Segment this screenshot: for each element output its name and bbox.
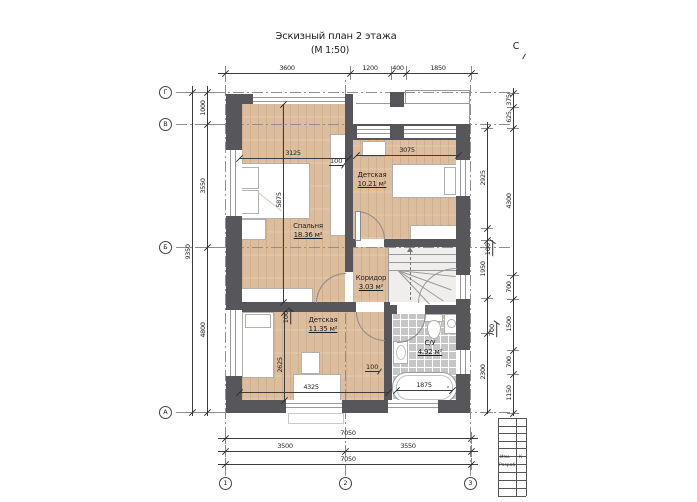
grid-axis-line-Г	[176, 92, 512, 93]
dim-label: 700	[505, 346, 513, 378]
room-label-Детская: Детская11.35 м²	[288, 316, 358, 334]
dim-label: 1500	[505, 308, 513, 340]
roof-edge-line	[356, 103, 470, 104]
room-name: Коридор	[336, 274, 406, 283]
dim-leader-text: 700	[488, 323, 497, 337]
dim-line-bottom-b	[218, 451, 478, 452]
dim-line-tub-1875	[396, 390, 452, 391]
titleblock-label: Разраб.	[499, 463, 517, 468]
door-opening-kidroom-bottom	[356, 302, 384, 312]
pillow	[444, 167, 456, 195]
dim-label: 700	[505, 271, 513, 303]
wall-bath-left	[384, 305, 392, 400]
room-area: 11.35 м²	[288, 325, 358, 334]
dim-label: 4325	[295, 383, 327, 391]
dim-line-room-5875	[283, 104, 284, 302]
dim-label: 1950	[479, 253, 487, 285]
pillow	[241, 190, 259, 214]
stair-tread	[388, 262, 456, 263]
window-bottom-2	[388, 400, 438, 413]
titleblock-hline	[498, 433, 526, 434]
dim-line-room-4325	[239, 392, 388, 393]
room-name: С/У	[395, 339, 465, 348]
titleblock-hline	[498, 418, 526, 419]
floor-plan-sheet: Эскизный план 2 этажа (М 1:50) С	[0, 0, 697, 502]
dim-line-room-3075	[356, 155, 458, 156]
room-area: 10.21 м²	[337, 180, 407, 189]
room-label-Коридор: Коридор3.03 м²	[336, 274, 406, 292]
room-area: 18.36 м²	[273, 231, 343, 240]
north-arrow-icon	[522, 54, 526, 60]
washing-machine-door-icon	[447, 319, 456, 328]
titleblock-vline	[516, 418, 517, 496]
titleblock-hline	[498, 480, 526, 481]
grid-axis-line-3	[470, 80, 471, 476]
dim-label: 3600	[271, 64, 303, 72]
dim-line-right-inner	[487, 122, 488, 414]
titleblock-label: Изм.	[500, 455, 511, 460]
room-name: Детская	[288, 316, 358, 325]
dim-label: 3550	[199, 170, 207, 202]
dim-label: 1850	[422, 64, 454, 72]
dim-leader-text: 100	[365, 363, 379, 372]
room-label-Детская: Детская10.21 м²	[337, 171, 407, 189]
dim-label: 1150	[505, 377, 513, 409]
room-name: Детская	[337, 171, 407, 180]
grid-bubble-Г: Г	[159, 86, 172, 99]
dim-label: 4300	[505, 185, 513, 217]
titleblock-vline	[526, 418, 527, 496]
drawing-title: Эскизный план 2 этажа	[246, 31, 426, 42]
bathtub-drain	[447, 386, 449, 388]
room-area: 4.92 м²	[395, 348, 465, 357]
dim-label: 7050	[332, 455, 364, 463]
dim-leader-label: 100	[329, 157, 343, 165]
titleblock-hline	[498, 496, 526, 497]
window-axis-v-2	[404, 126, 456, 138]
dim-label: 2625	[276, 349, 284, 381]
dim-label: 9350	[184, 236, 192, 268]
dim-label: 2925	[479, 162, 487, 194]
dim-label: 3075	[391, 146, 423, 154]
dim-label: 3550	[392, 442, 424, 450]
window-sill	[288, 413, 344, 424]
dim-leader-text: 100	[484, 242, 493, 256]
titleblock-hline	[498, 426, 526, 427]
dim-label: 5875	[275, 184, 283, 216]
dim-label: 2300	[479, 356, 487, 388]
grid-bubble-2: 2	[339, 477, 352, 490]
bedside-table	[301, 352, 320, 374]
titleblock-label: К	[519, 455, 522, 460]
pillow	[241, 167, 259, 189]
wall-pier-top	[390, 92, 404, 107]
grid-bubble-А: А	[159, 406, 172, 419]
titleblock-hline	[498, 448, 526, 449]
drawing-scale: (М 1:50)	[270, 45, 390, 56]
window-bedroom-left	[226, 150, 242, 216]
door-opening-bath	[397, 305, 425, 314]
room-area: 3.03 м²	[336, 283, 406, 292]
dim-label: 3500	[269, 442, 301, 450]
dim-leader-label: 100	[365, 363, 379, 371]
room-name: Спальня	[273, 222, 343, 231]
door-leaf-kidroom-top	[355, 211, 361, 241]
stair-direction-arrow-icon	[407, 247, 413, 252]
room-label-Спальня: Спальня18.36 м²	[273, 222, 343, 240]
dim-line-left-inner	[207, 86, 208, 416]
pillow	[245, 314, 271, 328]
titleblock-hline	[498, 441, 526, 442]
titleblock-hline	[498, 472, 526, 473]
titleblock-hline	[498, 488, 526, 489]
dim-line-bottom-c	[218, 464, 478, 465]
dim-leader-label: 100	[484, 242, 492, 256]
roof-edge-line	[469, 90, 470, 124]
room-label-С/У: С/У4.92 м²	[395, 339, 465, 357]
dim-label: 4800	[199, 314, 207, 346]
dim-leader-label: 700	[488, 323, 496, 337]
dim-label: 1875	[408, 381, 440, 389]
dim-label: 625	[505, 101, 513, 133]
window-kidroom-bottom-left	[226, 310, 242, 376]
grid-bubble-Б: Б	[159, 241, 172, 254]
dim-line-bottom-a	[218, 438, 478, 439]
window-stair-right	[456, 275, 470, 299]
dim-label: 3125	[277, 149, 309, 157]
dim-leader-text: 100	[329, 157, 343, 166]
dim-label: 400	[382, 64, 414, 72]
grid-bubble-1: 1	[219, 477, 232, 490]
roof-edge-line	[405, 90, 406, 104]
grid-bubble-3: 3	[464, 477, 477, 490]
dim-line-left-outer	[192, 86, 193, 416]
grid-bubble-В: В	[159, 118, 172, 131]
titleblock-vline	[498, 418, 499, 496]
roof-edge-line	[405, 90, 470, 91]
dim-line-right-outer	[513, 88, 514, 416]
stair-walk-line	[410, 252, 411, 300]
dim-label: 1000	[199, 92, 207, 124]
north-mark: С	[508, 41, 524, 52]
window-bedroom-top	[253, 94, 345, 104]
dim-label: 7050	[332, 429, 364, 437]
window-bottom-1	[286, 400, 342, 413]
dim-line-room-2625	[284, 312, 285, 400]
stair-tread	[388, 254, 456, 255]
window-kidroom-top-right	[456, 160, 470, 196]
window-axis-v-1	[357, 126, 390, 138]
